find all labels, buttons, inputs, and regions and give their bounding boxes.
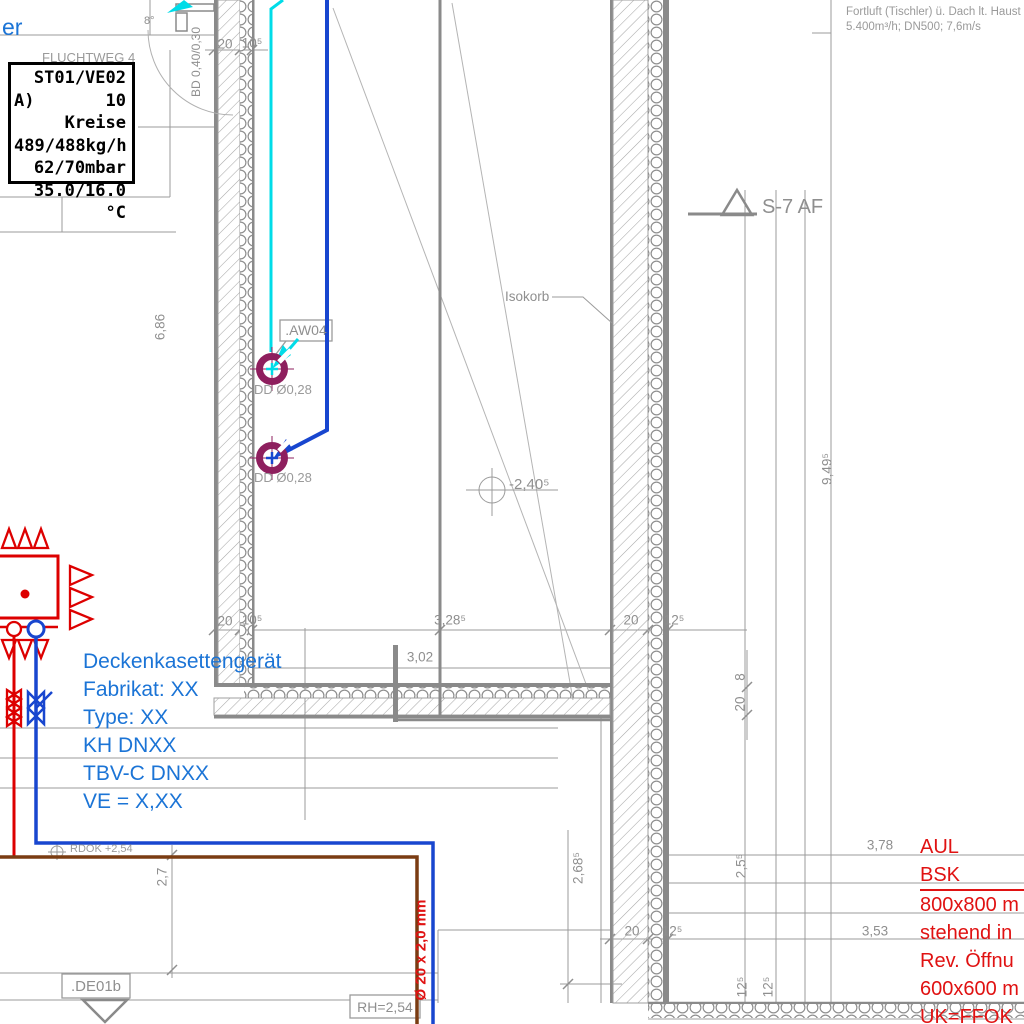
stamp-line2-value: 10 Kreise: [34, 90, 126, 135]
aul-bsk-line: AUL BSK: [920, 833, 1024, 891]
s7af-symbol: [688, 190, 757, 215]
dim-27: 2,7: [155, 868, 170, 887]
dim-268: 2,68⁵: [571, 852, 586, 884]
equipment-note-line: Type: XX: [83, 704, 281, 732]
dim-bottom-wall-20: 20: [624, 924, 639, 939]
s7af-label: S-7 AF: [762, 196, 823, 219]
stamp-line2: A) 10 Kreise: [14, 90, 126, 135]
wall-left: [214, 0, 255, 686]
rh-label: RH=2,54: [350, 995, 420, 1018]
construction-diagonals: [333, 3, 592, 700]
dim-top-wall-10: 10⁵: [242, 36, 263, 51]
dd-label-2: DD Ø0,28: [254, 470, 312, 485]
cad-drawing-canvas: FLUCHTWEG 4 ST01/VE02 A) 10 Kreise 489/4…: [0, 0, 1024, 1024]
equipment-note-line: TBV-C DNXX: [83, 760, 281, 788]
stamp-line4: 62/70mbar: [14, 157, 126, 180]
rdok-label: RDOK +2,54: [70, 843, 133, 855]
fortluft-note-line1: Fortluft (Tischler) ü. Dach lt. Haust: [846, 6, 1021, 18]
dim-328: 3,28⁵: [434, 613, 466, 628]
aw04-label: .AW04: [285, 322, 327, 338]
equipment-note: Deckenkasettengerät Fabrikat: XX Type: X…: [83, 648, 281, 816]
fortluft-note-line2: 5.400m³/h; DN500; 7,6m/s: [846, 21, 981, 33]
level-label: -2,40⁵: [509, 476, 549, 493]
aul-bsk-title: AUL BSK: [920, 833, 1024, 891]
isokorb-label: Isokorb: [505, 289, 549, 304]
dim-mid-10: 10⁵: [242, 613, 263, 628]
de01b-label: .DE01b: [62, 974, 130, 998]
stamp-line1: ST01/VE02: [14, 67, 126, 90]
clipped-blue-word: er: [2, 14, 22, 41]
dim-949: 9,49⁵: [820, 453, 835, 485]
aul-bsk-line: 600x600 m: [920, 975, 1024, 1003]
aul-bsk-line: UK=FFOK: [920, 1003, 1024, 1024]
dim-25: 2,5⁵: [734, 854, 749, 878]
circuit-stamp-box: ST01/VE02 A) 10 Kreise 489/488kg/h 62/70…: [8, 62, 135, 184]
bd-duct-label: BD 0,40/0,30: [189, 27, 203, 97]
pipe-size-label: Ø 20 x 2,0 mm: [413, 900, 430, 1001]
grid-lines: [0, 0, 1024, 1003]
stamp-line3: 489/488kg/h: [14, 135, 126, 158]
equipment-note-line: VE = X,XX: [83, 788, 281, 816]
dim-bottom-125b: 12⁵: [761, 977, 776, 998]
stamp-line5: 35.0/16.0 °C: [14, 180, 126, 225]
de01b-triangle: [83, 1000, 127, 1022]
dim-mid-20: 20: [217, 614, 232, 629]
angle-label: 8°: [144, 15, 155, 27]
dim-mid-wall-20: 20: [623, 613, 638, 628]
dim-302: 3,02: [407, 650, 433, 665]
dim-378: 3,78: [867, 838, 893, 853]
dim-353: 3,53: [862, 924, 888, 939]
dd-label-1: DD Ø0,28: [254, 382, 312, 397]
dim-chain-20: 20: [733, 696, 748, 711]
equipment-note-line: Fabrikat: XX: [83, 676, 281, 704]
aul-bsk-line: stehend in: [920, 919, 1024, 947]
stamp-line2-prefix: A): [14, 90, 34, 135]
equipment-note-line: KH DNXX: [83, 732, 281, 760]
aul-bsk-line: Rev. Öffnu: [920, 947, 1024, 975]
aul-bsk-line: 800x800 m: [920, 891, 1024, 919]
dim-686: 6,86: [153, 314, 168, 340]
aul-bsk-note: AUL BSK 800x800 m stehend in Rev. Öffnu …: [920, 833, 1024, 1024]
equipment-note-line: Deckenkasettengerät: [83, 648, 281, 676]
dim-top-wall-20: 20: [217, 37, 232, 52]
dim-mid-125: 12⁵: [664, 613, 685, 628]
dim-bottom-125a: 12⁵: [735, 977, 750, 998]
dim-chain-8: 8: [733, 673, 748, 681]
wall-right: [610, 0, 669, 1003]
dim-bottom-wall-125: 12⁵: [662, 924, 683, 939]
isokorb-leader: [552, 297, 612, 323]
